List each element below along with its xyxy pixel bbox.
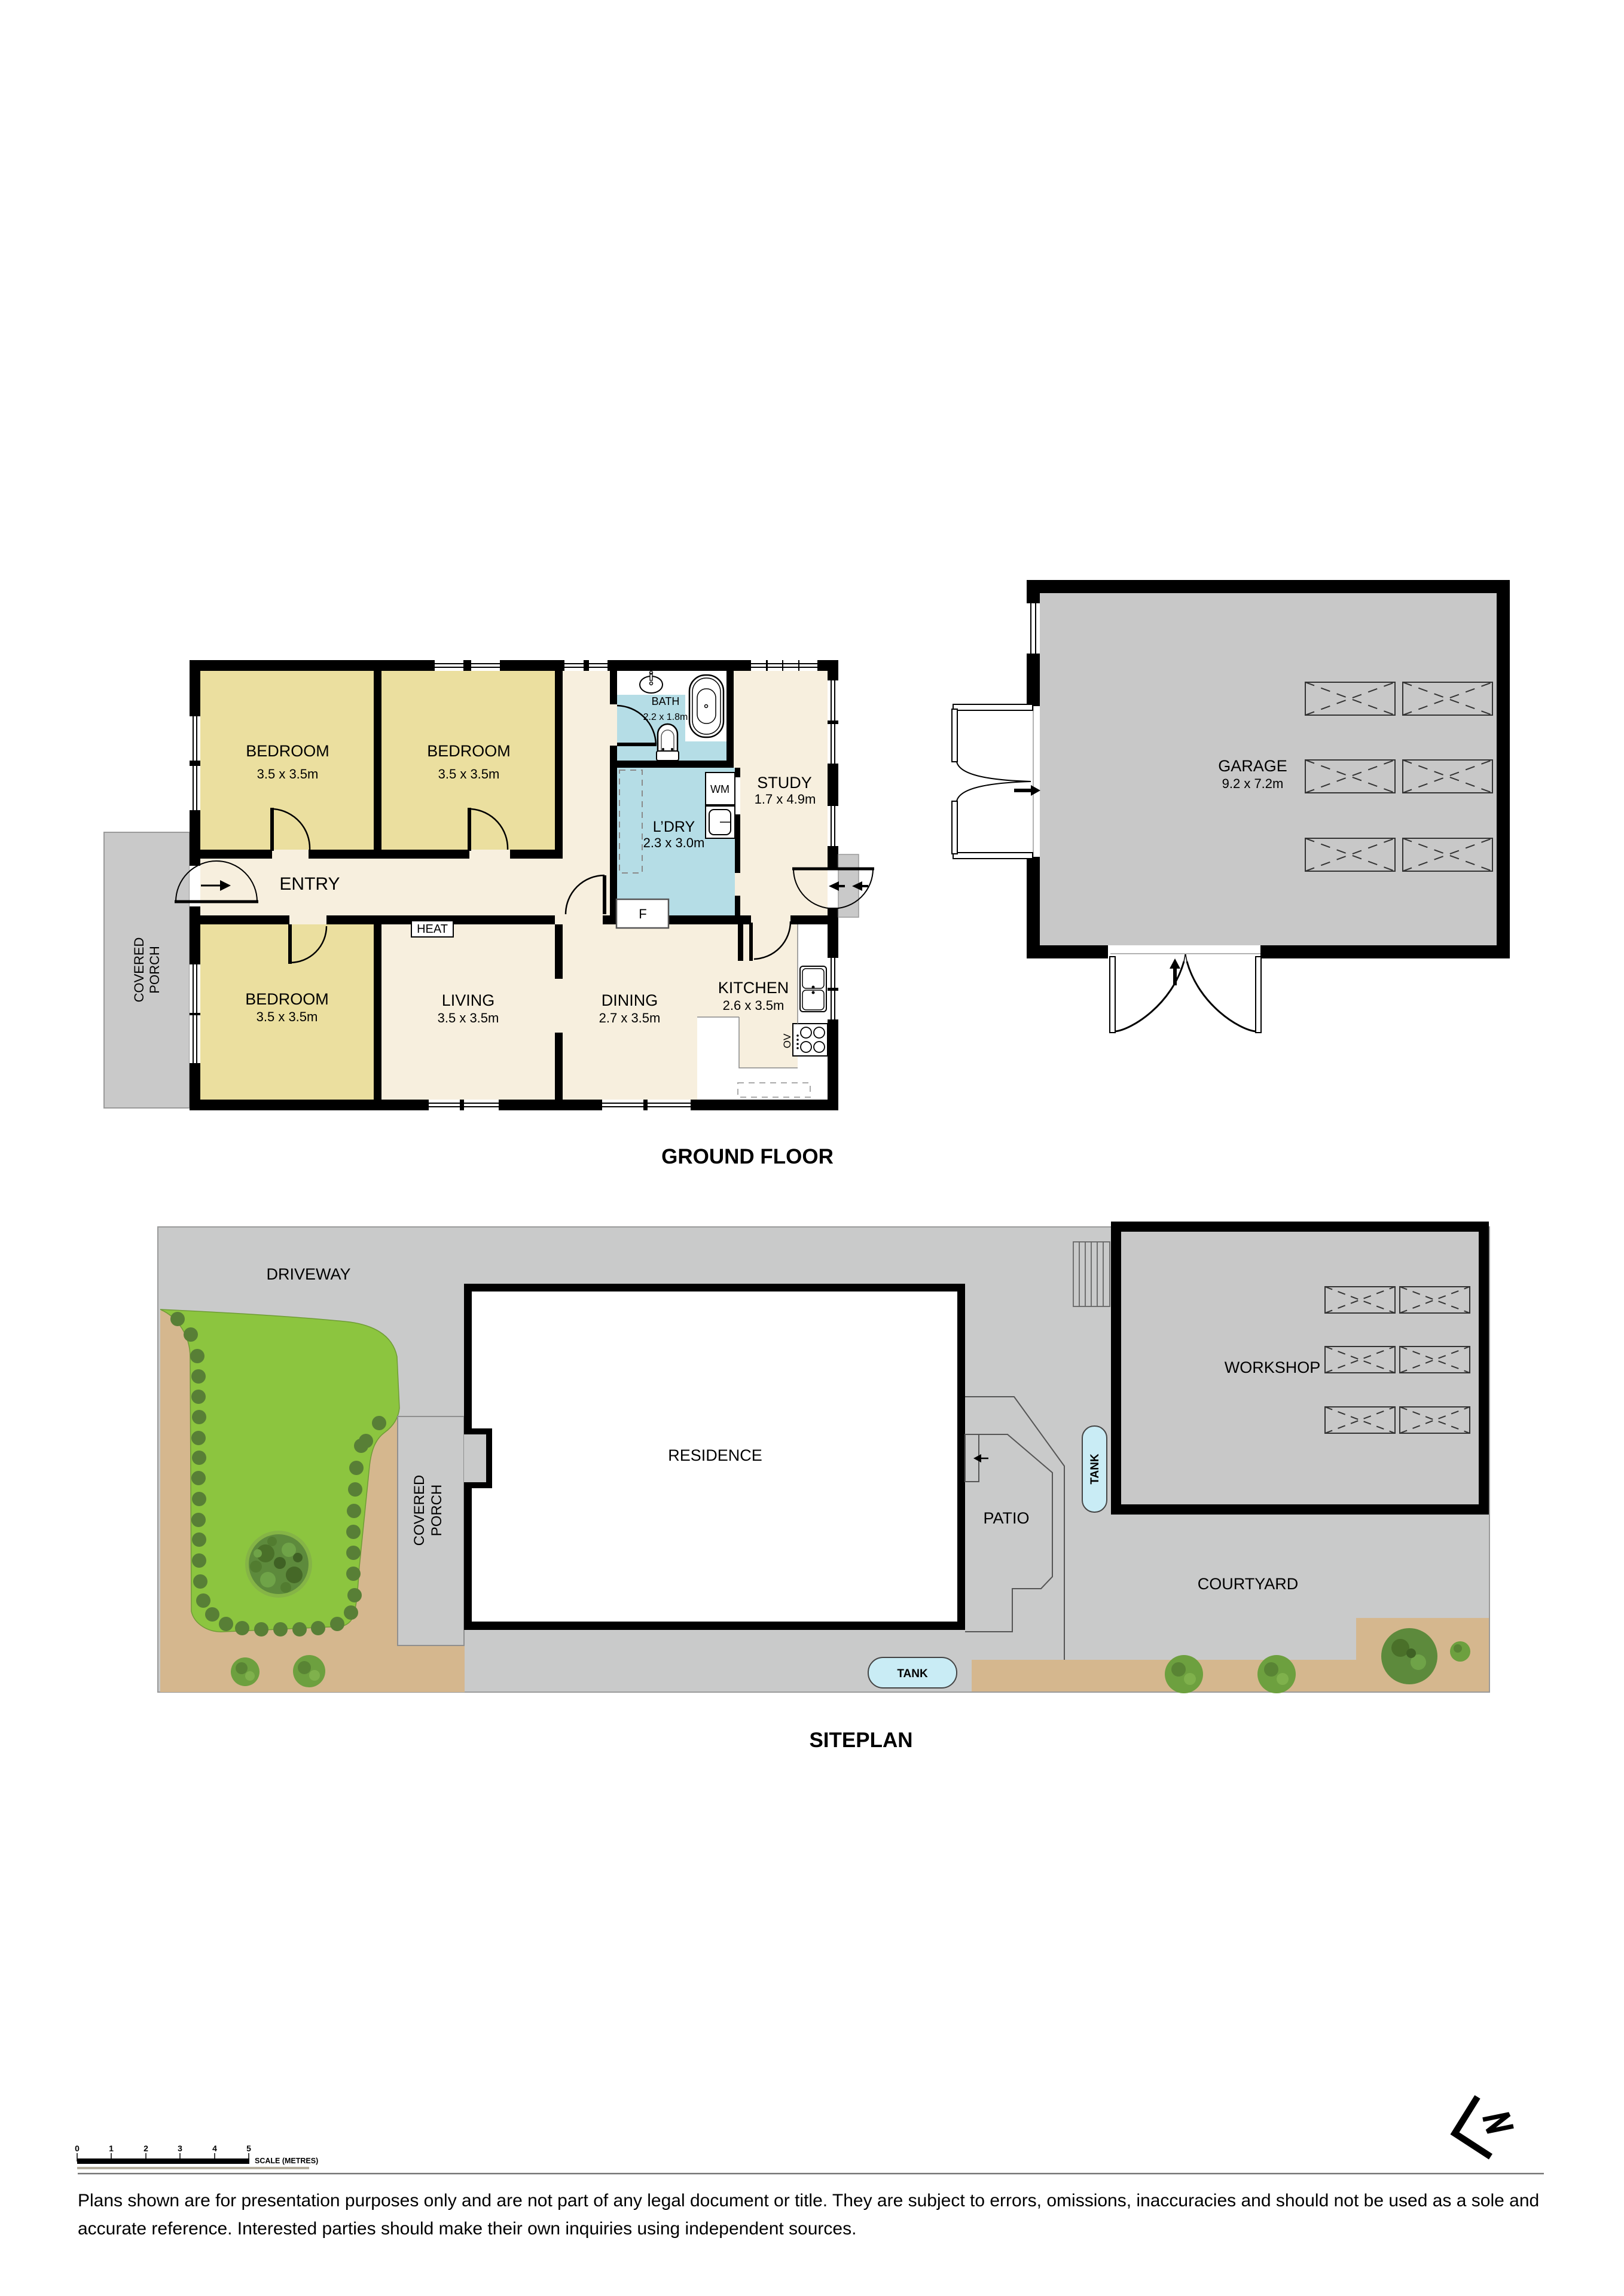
svg-text:OV: OV	[782, 1033, 793, 1048]
svg-text:TANK: TANK	[897, 1668, 928, 1680]
svg-text:0: 0	[75, 2144, 80, 2153]
svg-text:3.5 x 3.5m: 3.5 x 3.5m	[257, 767, 319, 781]
svg-text:PATIO: PATIO	[983, 1509, 1029, 1527]
svg-text:KITCHEN: KITCHEN	[718, 979, 789, 997]
svg-text:DINING: DINING	[602, 991, 658, 1009]
svg-text:BEDROOM: BEDROOM	[245, 990, 329, 1008]
svg-text:3: 3	[178, 2144, 182, 2153]
svg-text:4: 4	[212, 2144, 217, 2153]
svg-text:Plans shown are for presentati: Plans shown are for presentation purpose…	[78, 2191, 1539, 2210]
svg-text:2.6 x 3.5m: 2.6 x 3.5m	[723, 998, 784, 1013]
svg-text:WM: WM	[710, 783, 729, 795]
svg-text:accurate reference. Interested: accurate reference. Interested parties s…	[78, 2219, 856, 2239]
svg-text:COURTYARD: COURTYARD	[1198, 1575, 1299, 1593]
svg-text:STUDY: STUDY	[757, 774, 812, 792]
svg-text:3.5 x 3.5m: 3.5 x 3.5m	[438, 1010, 499, 1025]
svg-text:2.7 x 3.5m: 2.7 x 3.5m	[599, 1010, 661, 1025]
svg-text:COVEREDPORCH: COVEREDPORCH	[132, 938, 162, 1003]
svg-text:GARAGE: GARAGE	[1218, 757, 1287, 775]
svg-text:ENTRY: ENTRY	[279, 874, 340, 894]
svg-text:9.2 x 7.2m: 9.2 x 7.2m	[1222, 776, 1284, 791]
svg-text:BEDROOM: BEDROOM	[427, 742, 511, 760]
svg-text:3.5 x 3.5m: 3.5 x 3.5m	[257, 1009, 318, 1024]
svg-text:GROUND FLOOR: GROUND FLOOR	[661, 1145, 834, 1168]
svg-text:RESIDENCE: RESIDENCE	[668, 1446, 762, 1464]
svg-text:WORKSHOP: WORKSHOP	[1225, 1358, 1321, 1376]
svg-text:1.7 x 4.9m: 1.7 x 4.9m	[755, 792, 816, 807]
svg-text:L’DRY: L’DRY	[653, 819, 695, 835]
svg-text:SCALE (METRES): SCALE (METRES)	[255, 2157, 318, 2165]
svg-text:TANK: TANK	[1089, 1454, 1101, 1485]
svg-text:SITEPLAN: SITEPLAN	[809, 1729, 912, 1752]
svg-text:BEDROOM: BEDROOM	[246, 742, 329, 760]
svg-text:2.3 x 3.0m: 2.3 x 3.0m	[643, 835, 705, 850]
svg-text:2: 2	[144, 2144, 148, 2153]
svg-text:3.5 x 3.5m: 3.5 x 3.5m	[438, 767, 500, 781]
svg-text:DRIVEWAY: DRIVEWAY	[266, 1265, 350, 1283]
svg-text:2.2 x 1.8m: 2.2 x 1.8m	[643, 712, 688, 722]
svg-text:HEAT: HEAT	[417, 923, 448, 936]
svg-text:1: 1	[109, 2144, 114, 2153]
svg-text:F: F	[639, 906, 646, 921]
svg-text:LIVING: LIVING	[442, 991, 495, 1009]
svg-text:5: 5	[246, 2144, 251, 2153]
svg-text:BATH: BATH	[652, 695, 680, 707]
